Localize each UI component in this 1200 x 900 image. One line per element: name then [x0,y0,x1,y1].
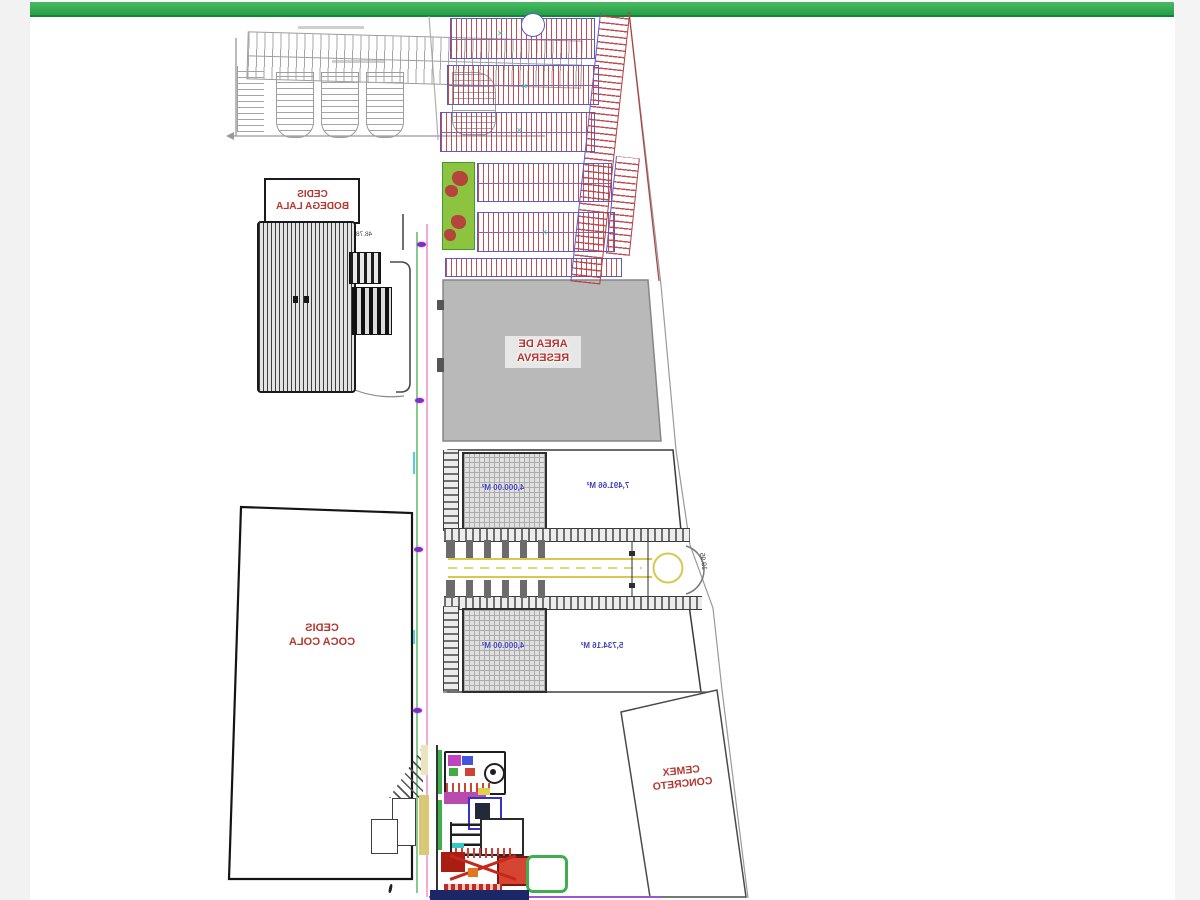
tree-icon [452,171,468,186]
survey-mark-icon: ✕ [521,82,528,91]
upper-lot-area-text: 7,491.66 M² [568,481,648,490]
upper-pad-area-text: 4,000.00 M² [468,483,538,492]
survey-mark-icon: ✕ [541,228,548,237]
coca-label-line1: CEDIS [282,622,362,636]
street-stall-stub [502,540,509,558]
road-annotation-mark [413,630,415,644]
detail-block-blue [462,756,473,765]
parking-stall-column [237,66,264,132]
parking-island [276,72,314,138]
reserve-edge-tick [437,358,444,372]
road-median-strip [419,795,429,855]
street-stall-stub [538,540,545,558]
lala-label-box: CEDIS BODEGA LALA [264,178,360,224]
building-core-mark [304,296,309,303]
parking-island [321,72,359,138]
detail-green-strip [438,750,442,794]
building-core-mark [293,296,298,303]
road-flow-marker [417,242,426,247]
green-pad-outline [526,855,568,893]
road-flow-marker [413,708,422,713]
detail-block-magenta [448,755,461,766]
site-plan-drawing: ✕ ✕ ✕ ✕ CEDIS BODEGA LALA 48.78 AREA DE [0,0,1200,900]
street-stall-stub [466,540,473,558]
reserve-edge-tick [437,300,444,310]
lower-pad-area-text: 4,000.00 M² [468,641,538,650]
coca-label-line2: COCA COLA [282,636,362,650]
tree-icon [451,215,466,229]
parking-island [366,72,404,138]
street-stall-stub [484,540,491,558]
loading-docks [349,252,381,284]
street-stall-stub [446,580,455,598]
street-stall-stub [538,580,545,598]
street-stall-stub [520,540,527,558]
coca-cola-label: CEDIS COCA COLA [282,622,362,650]
loading-docks [352,287,392,335]
turnaround-center-dot [490,769,496,775]
parking-header-text [298,26,364,29]
lala-label-line2: BODEGA LALA [276,201,349,214]
upper-building-pad [462,452,547,535]
parcel-frontage-hatch [443,450,459,531]
reserve-label-line1: AREA DE [505,338,581,352]
tree-icon [445,185,458,197]
lala-warehouse-building [257,221,356,393]
road-flow-marker [415,398,424,403]
road-annotation-mark [413,452,415,474]
lala-frontage-dimension: 48.78 [356,231,372,238]
street-stall-stub [466,580,473,598]
scanned-site-plan-page: ✕ ✕ ✕ ✕ CEDIS BODEGA LALA 48.78 AREA DE [0,0,1200,900]
detail-block-yellow [478,788,490,795]
bottom-navy-bar [430,890,529,900]
street-stall-stub [520,580,527,598]
lower-building-pad [462,608,547,693]
lala-label-line1: CEDIS [276,189,349,202]
lot-block-divider [451,39,594,40]
lower-lot-area-text: 5,734.16 M² [560,641,644,650]
reserve-label-line2: RESERVA [505,352,581,366]
survey-mark-icon: ✕ [516,126,523,135]
survey-mark-icon: ✕ [497,29,504,38]
park-strip [442,162,475,250]
road-flow-marker [414,547,423,552]
street-stall-stub [484,580,491,598]
reserve-area-label: AREA DE RESERVA [505,336,581,368]
detail-blue-structure-core [475,803,490,819]
detail-block-red [465,768,475,776]
culdesac-notch [521,13,545,37]
road-median-strip [421,745,428,775]
tree-icon [444,229,456,241]
street-stall-stub [446,540,455,558]
detail-green-strip [438,800,442,850]
street-north-curb [444,528,690,542]
street-stall-stub [502,580,509,598]
service-structure [371,819,398,854]
detail-block-green [449,768,458,776]
lala-label: CEDIS BODEGA LALA [276,189,349,214]
entrance-orange-block [468,868,478,877]
parcel-frontage-hatch [443,606,459,691]
